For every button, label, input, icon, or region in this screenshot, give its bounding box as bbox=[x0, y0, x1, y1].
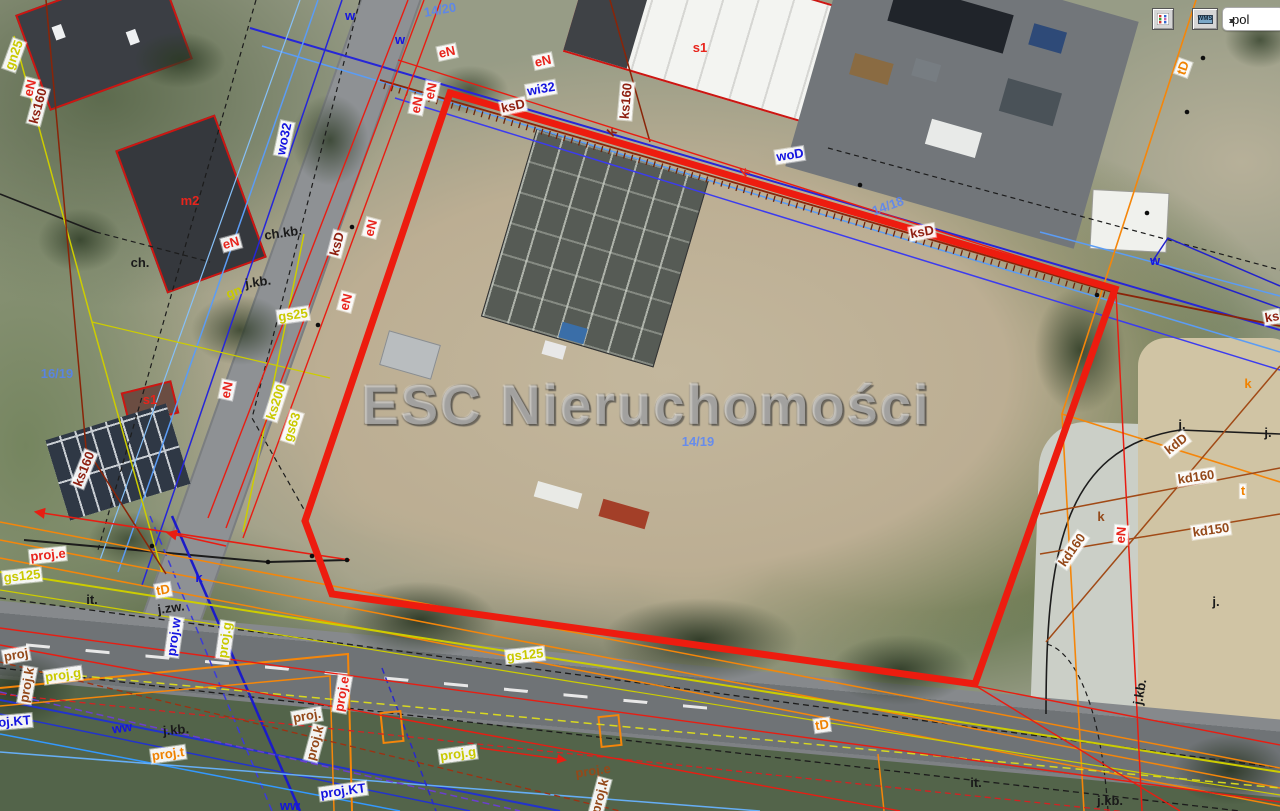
sewer-lines bbox=[0, 0, 1280, 811]
map-label: tD bbox=[813, 717, 830, 733]
map-label: k bbox=[1243, 377, 1252, 391]
water-lines bbox=[0, 0, 1280, 811]
aerial-map-canvas[interactable]: ESC Nieruchomości bbox=[0, 0, 1280, 811]
map-label: it. bbox=[85, 593, 99, 607]
map-label: 16/19 bbox=[40, 367, 75, 381]
language-select[interactable]: pol bbox=[1222, 7, 1280, 31]
map-label: ww bbox=[110, 720, 134, 737]
legend-button[interactable] bbox=[1152, 8, 1174, 30]
map-label: j. bbox=[1211, 595, 1220, 609]
map-label: w bbox=[394, 33, 406, 47]
map-label: eN bbox=[1113, 525, 1128, 545]
property-boundary-outline bbox=[305, 93, 1115, 684]
telecom-lines bbox=[0, 0, 1280, 811]
map-label: w bbox=[344, 9, 356, 23]
chevron-down-icon bbox=[1229, 19, 1235, 23]
map-label: ks bbox=[1263, 309, 1280, 325]
map-label: 14/19 bbox=[681, 435, 716, 449]
map-label: k bbox=[1096, 510, 1105, 524]
wms-button[interactable]: WMS bbox=[1192, 8, 1218, 30]
map-label: w bbox=[1149, 254, 1161, 268]
map-label: ch. bbox=[130, 256, 151, 270]
legend-grid-icon bbox=[1157, 13, 1169, 25]
map-label: k bbox=[194, 571, 203, 585]
parcel-boundary-lines bbox=[0, 0, 1280, 811]
map-label: s1 bbox=[692, 41, 708, 55]
map-label: it. bbox=[969, 776, 983, 790]
map-label: tD bbox=[154, 582, 172, 598]
map-label: ks160 bbox=[618, 81, 635, 120]
map-label: t bbox=[1240, 484, 1246, 498]
power-lines bbox=[0, 0, 1280, 811]
map-label: m2 bbox=[180, 194, 201, 208]
utility-lines-overlay bbox=[0, 0, 1280, 811]
map-label: ww bbox=[279, 799, 301, 811]
map-label: j.kb. bbox=[161, 722, 190, 738]
wms-label: WMS bbox=[1198, 16, 1213, 22]
map-label: j.kb. bbox=[1096, 794, 1124, 808]
map-label: j. bbox=[1263, 426, 1272, 440]
map-label: s1 bbox=[142, 393, 158, 407]
